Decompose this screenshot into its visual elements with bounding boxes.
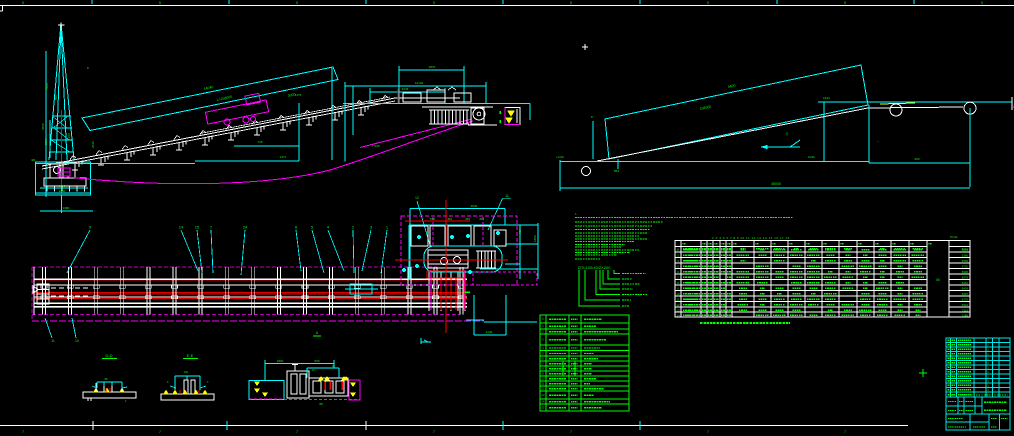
svg-text:4M: 4M (31, 158, 36, 162)
svg-text:6597: 6597 (962, 292, 969, 296)
svg-text:5732: 5732 (962, 265, 969, 269)
svg-text:745: 745 (257, 140, 262, 144)
svg-text:5: 5 (159, 1, 161, 5)
svg-text:7: 7 (844, 430, 846, 434)
svg-text:15: 15 (195, 225, 200, 230)
svg-text:1800: 1800 (533, 235, 537, 242)
svg-text:D-D: D-D (105, 353, 112, 358)
svg-text:11: 11 (505, 194, 509, 198)
svg-text:12: 12 (676, 303, 680, 307)
svg-text:4376: 4376 (295, 93, 302, 97)
svg-text:88: 88 (319, 402, 323, 406)
svg-text:7600: 7600 (45, 83, 49, 90)
svg-text:66: 66 (936, 278, 940, 282)
svg-text:1.: 1. (575, 212, 578, 216)
svg-text:12: 12 (415, 196, 419, 200)
svg-text:13: 13 (676, 308, 680, 312)
svg-text:4870: 4870 (429, 65, 436, 69)
svg-text:1980: 1980 (63, 206, 70, 210)
svg-text:E-E: E-E (187, 353, 194, 358)
svg-text:6943: 6943 (962, 303, 969, 307)
svg-text:12192: 12192 (415, 81, 424, 85)
svg-text:6078: 6078 (962, 276, 969, 280)
svg-text:7116: 7116 (962, 309, 968, 313)
svg-text:5: 5 (22, 1, 24, 5)
svg-text:5: 5 (433, 1, 435, 5)
svg-text:600: 600 (314, 359, 319, 363)
svg-text:450: 450 (447, 217, 452, 221)
svg-text:5: 5 (844, 1, 846, 5)
svg-text:45000: 45000 (771, 182, 781, 186)
svg-text:900: 900 (518, 229, 522, 234)
svg-text:1000: 1000 (59, 184, 66, 188)
svg-text:864: 864 (614, 169, 619, 173)
svg-text:11: 11 (51, 339, 55, 343)
svg-text:11: 11 (676, 297, 679, 301)
svg-text:2530: 2530 (91, 141, 95, 148)
svg-text:3040: 3040 (471, 204, 478, 208)
svg-text:1644: 1644 (823, 96, 830, 100)
svg-text:7: 7 (159, 430, 161, 434)
svg-text:5559: 5559 (962, 259, 969, 263)
svg-text:5213: 5213 (962, 248, 969, 252)
svg-text:2 X 4 5 6 7 8 9 10 11 12 13 14: 2 X 4 5 6 7 8 9 10 11 12 13 14 15 16 17 … (712, 236, 790, 240)
svg-text:1240: 1240 (486, 330, 493, 334)
svg-text:24: 24 (243, 225, 248, 230)
svg-text:1471: 1471 (280, 155, 287, 159)
svg-text:5386: 5386 (962, 254, 969, 258)
svg-text:+0.00: +0.00 (556, 155, 564, 159)
svg-text:7: 7 (570, 430, 572, 434)
svg-text:1860: 1860 (59, 189, 66, 193)
svg-text:DTL100/40/2X200: DTL100/40/2X200 (578, 265, 611, 270)
svg-text:1046: 1046 (808, 155, 815, 159)
svg-text:450: 450 (465, 217, 470, 221)
svg-text:5905: 5905 (962, 270, 969, 274)
svg-text:5: 5 (570, 1, 572, 5)
svg-text:5: 5 (296, 1, 298, 5)
svg-text:7: 7 (707, 430, 709, 434)
svg-text:6770: 6770 (962, 298, 969, 302)
svg-text:1800: 1800 (277, 359, 284, 363)
svg-text:6251: 6251 (962, 281, 969, 285)
svg-text:6245: 6245 (402, 87, 409, 91)
svg-text:-7.508: -7.508 (371, 144, 380, 148)
svg-text:10: 10 (676, 292, 680, 296)
svg-text:7: 7 (296, 430, 298, 434)
svg-text:7: 7 (22, 430, 24, 434)
svg-text:6424: 6424 (962, 287, 969, 291)
svg-text:5: 5 (981, 1, 983, 5)
svg-text:14: 14 (179, 225, 184, 230)
svg-text:14: 14 (676, 313, 680, 317)
svg-text:5: 5 (707, 1, 709, 5)
svg-text:120: 120 (184, 371, 189, 374)
svg-text:300: 300 (914, 157, 919, 161)
svg-text:4560: 4560 (41, 123, 45, 130)
svg-text:890: 890 (54, 95, 58, 100)
svg-text:10: 10 (75, 339, 79, 343)
svg-text:P.N.E: P.N.E (950, 235, 957, 239)
svg-text:7: 7 (433, 430, 435, 434)
svg-text:7289: 7289 (962, 314, 969, 318)
svg-text:870: 870 (430, 217, 435, 221)
svg-text:450: 450 (479, 217, 484, 221)
